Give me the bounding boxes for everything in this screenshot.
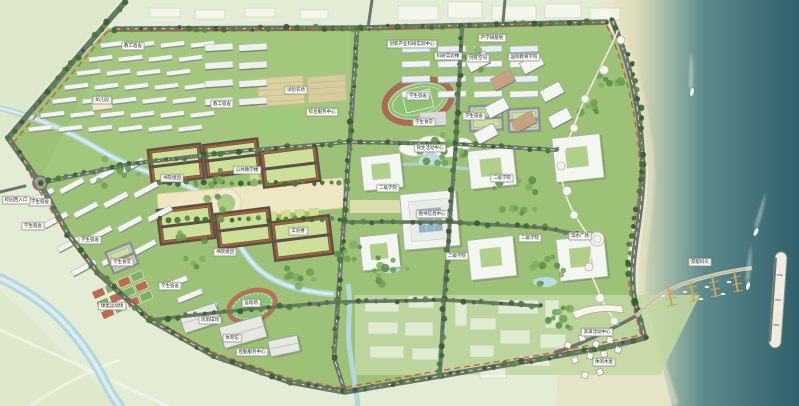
plan-canvas xyxy=(0,0,799,406)
campus-master-plan-rendering: 教工宿舍教工宿舍幼儿园试验农场综合服务中心创新产业科研实验中心科研实验楼产学研基… xyxy=(0,0,799,406)
axis-extension xyxy=(350,200,408,213)
